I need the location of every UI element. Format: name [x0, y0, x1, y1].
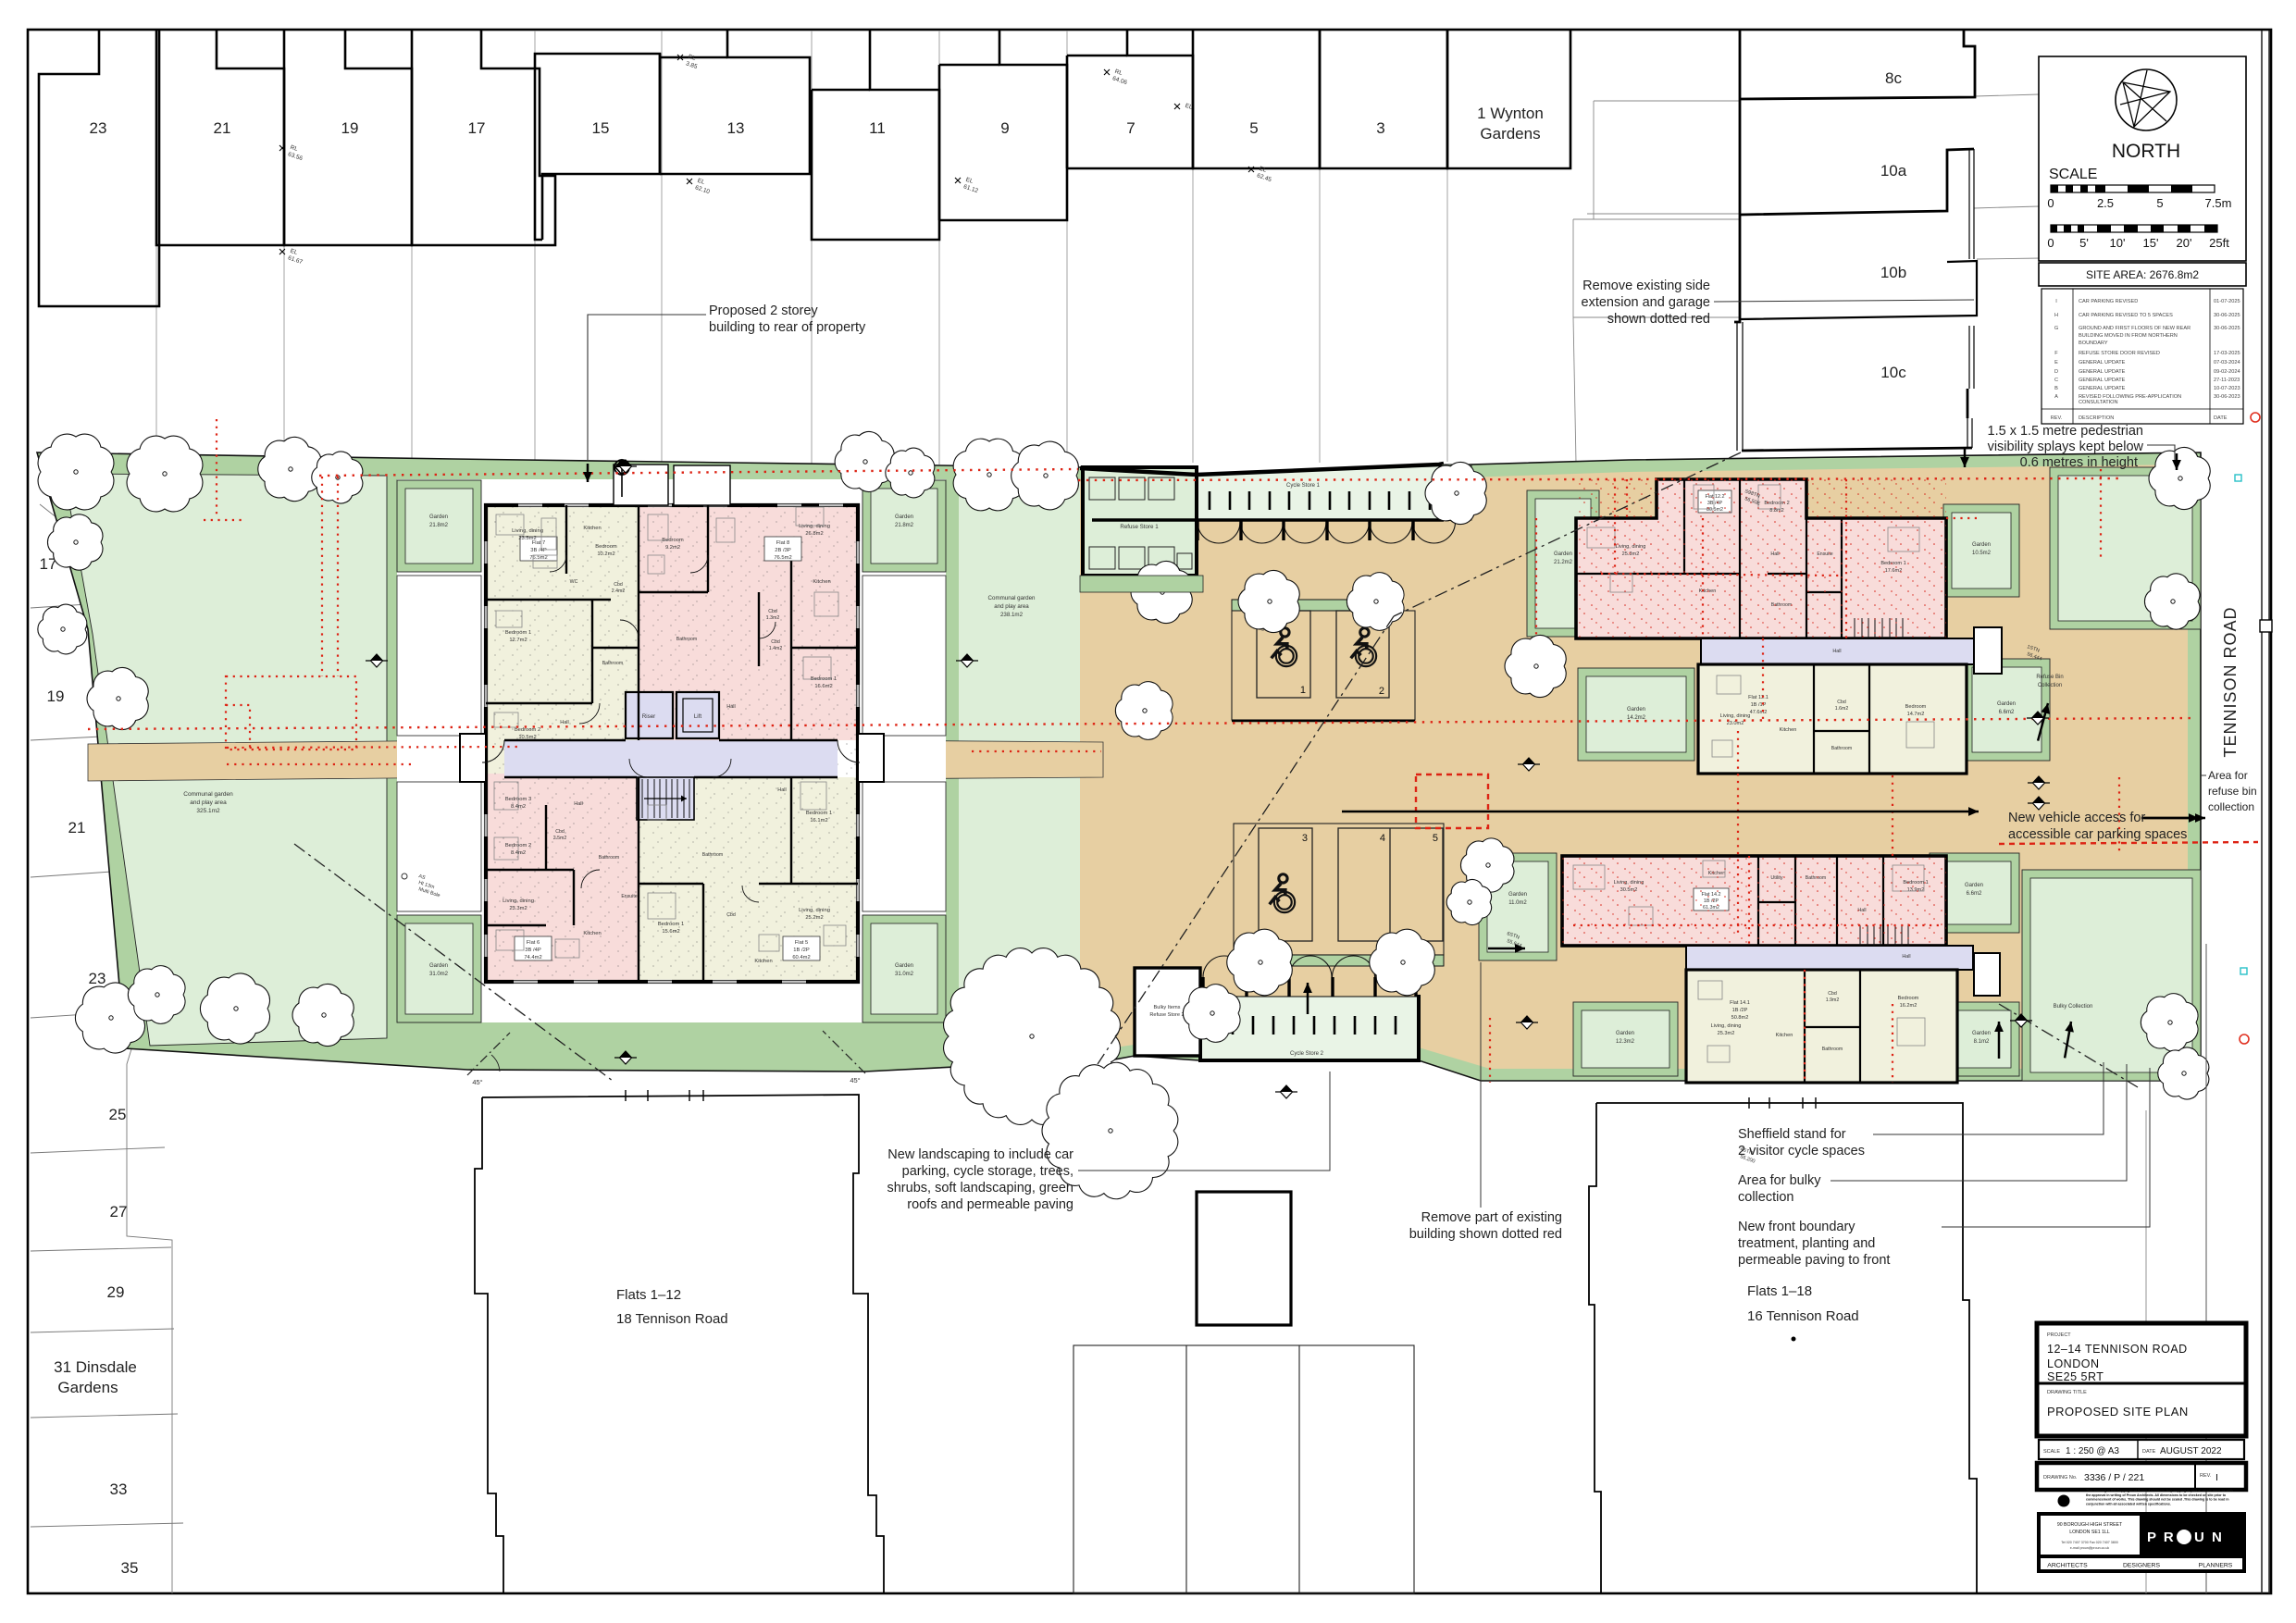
svg-text:Cycle Store 1: Cycle Store 1 — [1286, 483, 1321, 489]
svg-text:building to rear of property: building to rear of property — [709, 320, 866, 335]
svg-text:PLANNERS: PLANNERS — [2199, 1563, 2233, 1569]
svg-text:21: 21 — [68, 819, 86, 836]
svg-text:Kitchen: Kitchen — [1780, 727, 1797, 733]
svg-text:11.0m2: 11.0m2 — [1508, 900, 1527, 906]
svg-text:47.6m2: 47.6m2 — [1750, 710, 1768, 715]
svg-text:the approval in writing of Pro: the approval in writing of Proun Archite… — [2086, 1493, 2227, 1497]
svg-text:Tel 020 7407 3700 Fax: Tel 020 7407 3700 Fax 020 7407 3800 — [2061, 1541, 2118, 1544]
svg-text:REFUSE STORE DOOR REVISED: REFUSE STORE DOOR REVISED — [2079, 351, 2160, 356]
svg-text:31.0m2: 31.0m2 — [895, 972, 914, 977]
svg-text:refuse bin: refuse bin — [2208, 785, 2257, 798]
svg-text:DATE: DATE — [2214, 415, 2228, 421]
svg-text:Bulky Collection: Bulky Collection — [2054, 1004, 2093, 1010]
svg-text:building shown dotted red: building shown dotted red — [1409, 1227, 1562, 1242]
svg-text:8.1m2: 8.1m2 — [1974, 1039, 1990, 1045]
svg-text:2: 2 — [1379, 686, 1384, 697]
svg-text:NORTH: NORTH — [2112, 141, 2180, 162]
svg-text:Cbd: Cbd — [614, 582, 623, 588]
svg-text:Living, dining: Living, dining — [799, 908, 830, 913]
svg-text:P R: P R — [2147, 1530, 2176, 1545]
svg-text:17-03-2025: 17-03-2025 — [2214, 351, 2240, 356]
svg-text:collection: collection — [1738, 1190, 1793, 1205]
svg-text:0.6 metres in height: 0.6 metres in height — [2020, 455, 2138, 470]
svg-text:Bathroom: Bathroom — [1822, 1047, 1843, 1052]
svg-text:12.3m2: 12.3m2 — [1616, 1039, 1635, 1045]
svg-text:Flat 8: Flat 8 — [776, 540, 790, 546]
svg-text:New vehicle access for: New vehicle access for — [2008, 811, 2145, 825]
svg-text:1.3m2: 1.3m2 — [766, 615, 780, 621]
svg-text:17: 17 — [468, 119, 486, 137]
svg-text:Garden: Garden — [1972, 542, 1991, 548]
svg-text:7.5m: 7.5m — [2205, 196, 2232, 210]
svg-text:Hall: Hall — [777, 787, 786, 793]
svg-text:Bulky Items: Bulky Items — [1154, 1005, 1181, 1010]
svg-text:3B /4P: 3B /4P — [530, 548, 547, 553]
svg-text:3B /4P: 3B /4P — [525, 948, 541, 953]
svg-text:Hall: Hall — [1832, 649, 1841, 654]
svg-text:GROUND AND FIRST FLOORS OF: GROUND AND FIRST FLOORS OF NEW REAR — [2079, 326, 2191, 331]
svg-text:Refuse Bin: Refuse Bin — [2036, 675, 2063, 680]
svg-text:1B /2P: 1B /2P — [793, 948, 810, 953]
svg-text:2.4m2: 2.4m2 — [612, 588, 626, 594]
svg-text:27-11-2023: 27-11-2023 — [2214, 378, 2240, 383]
svg-text:45°: 45° — [850, 1076, 860, 1084]
svg-text:14.7m2: 14.7m2 — [1907, 712, 1925, 717]
svg-text:and play area: and play area — [190, 799, 227, 806]
svg-text:10': 10' — [2110, 236, 2126, 250]
svg-text:90 BOROUGH HIGH STREET: 90 BOROUGH HIGH STREET — [2057, 1522, 2123, 1528]
svg-text:Communal garden: Communal garden — [183, 791, 233, 798]
svg-text:0: 0 — [2047, 196, 2054, 210]
svg-text:I: I — [2215, 1472, 2218, 1483]
svg-text:16.2m2: 16.2m2 — [1900, 1003, 1917, 1009]
svg-text:GENERAL UPDATE: GENERAL UPDATE — [2079, 360, 2126, 365]
svg-text:5': 5' — [2079, 236, 2089, 250]
svg-text:6.6m2: 6.6m2 — [1999, 710, 2015, 715]
svg-text:BOUNDARY: BOUNDARY — [2079, 341, 2108, 346]
svg-text:G: G — [2054, 326, 2058, 331]
svg-text:PROJECT: PROJECT — [2047, 1332, 2071, 1338]
svg-text:07-03-2024: 07-03-2024 — [2214, 360, 2240, 365]
svg-text:Collection: Collection — [2038, 683, 2062, 688]
svg-text:10a: 10a — [1880, 162, 1907, 180]
svg-text:DESCRIPTION: DESCRIPTION — [2079, 415, 2114, 421]
svg-text:and play area: and play area — [994, 603, 1029, 610]
svg-text:collection: collection — [2208, 800, 2254, 813]
svg-text:Living, dining: Living, dining — [503, 898, 534, 904]
svg-text:C: C — [2054, 378, 2058, 383]
svg-text:shown dotted red: shown dotted red — [1607, 312, 1710, 327]
svg-text:visibility splays kept below: visibility splays kept below — [1988, 440, 2144, 454]
svg-text:12.7m2: 12.7m2 — [509, 638, 527, 643]
svg-text:Cbd: Cbd — [768, 609, 777, 614]
svg-text:Bedroom: Bedroom — [1905, 704, 1927, 710]
svg-text:F: F — [2054, 351, 2058, 356]
svg-text:4: 4 — [1380, 833, 1385, 844]
svg-text:19: 19 — [341, 119, 359, 137]
svg-text:Riser: Riser — [642, 713, 655, 720]
svg-text:New landscaping to include: New landscaping to include car — [887, 1147, 1074, 1162]
svg-text:parking, cycle storage, trees: parking, cycle storage, trees, — [902, 1164, 1074, 1179]
svg-text:Refuse Store 1: Refuse Store 1 — [1120, 524, 1159, 530]
svg-text:10-07-2023: 10-07-2023 — [2214, 386, 2240, 391]
svg-text:1.9m2: 1.9m2 — [1826, 997, 1840, 1003]
svg-text:roofs and permeable paving: roofs and permeable paving — [907, 1197, 1074, 1212]
svg-text:238.1m2: 238.1m2 — [1000, 612, 1024, 618]
svg-text:Kitchen: Kitchen — [583, 526, 601, 531]
svg-text:3: 3 — [1302, 833, 1308, 844]
svg-text:Cbd: Cbd — [555, 829, 565, 835]
svg-text:2 visitor cycle spaces: 2 visitor cycle spaces — [1738, 1144, 1865, 1158]
svg-text:2.5: 2.5 — [2097, 196, 2114, 210]
svg-text:Living, dining: Living, dining — [512, 528, 543, 534]
svg-text:30-06-2025: 30-06-2025 — [2214, 313, 2240, 318]
svg-text:23: 23 — [89, 970, 106, 987]
svg-text:GENERAL UPDATE: GENERAL UPDATE — [2079, 386, 2126, 391]
svg-text:2.5m2: 2.5m2 — [553, 836, 567, 841]
svg-text:25: 25 — [109, 1106, 127, 1123]
svg-text:E: E — [2054, 360, 2058, 365]
svg-text:Refuse Store 2: Refuse Store 2 — [1149, 1012, 1184, 1018]
svg-text:25.2m2: 25.2m2 — [805, 915, 823, 921]
svg-text:21: 21 — [214, 119, 231, 137]
svg-text:B: B — [2054, 386, 2058, 391]
svg-text:Communal garden: Communal garden — [988, 595, 1036, 601]
svg-text:H: H — [2054, 313, 2058, 318]
svg-text:21.8m2: 21.8m2 — [895, 523, 914, 528]
svg-text:Bedroom 1: Bedroom 1 — [658, 922, 684, 927]
svg-text:Proposed 2 storey: Proposed 2 storey — [709, 304, 818, 318]
svg-text:16.6m2: 16.6m2 — [814, 684, 832, 689]
svg-text:WC: WC — [570, 579, 578, 585]
svg-text:31 Dinsdale: 31 Dinsdale — [54, 1358, 137, 1376]
svg-text:Kitchen: Kitchen — [754, 959, 772, 964]
svg-text:5: 5 — [1433, 833, 1438, 844]
svg-text:Gardens: Gardens — [57, 1379, 118, 1396]
svg-text:SE25 5RT: SE25 5RT — [2047, 1370, 2104, 1383]
svg-text:DRAWING No.: DRAWING No. — [2043, 1475, 2078, 1481]
svg-text:74.4m2: 74.4m2 — [524, 955, 541, 960]
svg-text:BUILDING MOVED IN FROM NOR: BUILDING MOVED IN FROM NORTHERN — [2079, 333, 2178, 339]
svg-text:325.1m2: 325.1m2 — [196, 808, 220, 814]
svg-text:TENNISON ROAD: TENNISON ROAD — [2221, 606, 2240, 757]
svg-text:16 Tennison Road: 16 Tennison Road — [1747, 1308, 1859, 1324]
svg-text:12–14 TENNISON ROAD: 12–14 TENNISON ROAD — [2047, 1343, 2188, 1356]
svg-text:CAR PARKING REVISED: CAR PARKING REVISED — [2079, 299, 2138, 304]
svg-text:5: 5 — [2156, 196, 2163, 210]
svg-text:23: 23 — [90, 119, 107, 137]
svg-text:Garden: Garden — [1508, 892, 1527, 898]
svg-text:shrubs, soft landscaping, gree: shrubs, soft landscaping, green — [887, 1181, 1074, 1196]
svg-text:Cbd: Cbd — [771, 639, 780, 645]
svg-text:33: 33 — [110, 1481, 128, 1498]
svg-text:SCALE: SCALE — [2049, 167, 2097, 182]
svg-text:Bathroom: Bathroom — [676, 637, 698, 642]
svg-text:15.6m2: 15.6m2 — [662, 929, 679, 935]
svg-text:Garden: Garden — [1616, 1031, 1634, 1036]
svg-text:Garden: Garden — [895, 514, 913, 520]
svg-text:LONDON SE1 1LL: LONDON SE1 1LL — [2069, 1530, 2110, 1535]
svg-text:Kitchen: Kitchen — [1776, 1033, 1793, 1038]
svg-text:permeable paving to front: permeable paving to front — [1738, 1253, 1890, 1268]
svg-text:Hall: Hall — [560, 720, 568, 725]
svg-text:Bathroom: Bathroom — [702, 852, 724, 858]
svg-text:Garden: Garden — [1972, 1031, 1991, 1036]
svg-text:76.5m2: 76.5m2 — [774, 555, 791, 561]
svg-text:13: 13 — [727, 119, 745, 137]
svg-text:PROPOSED SITE PLAN: PROPOSED SITE PLAN — [2047, 1405, 2189, 1419]
svg-text:31.0m2: 31.0m2 — [429, 972, 449, 977]
svg-text:Bathroom: Bathroom — [602, 661, 624, 666]
svg-text:Remove existing side: Remove existing side — [1582, 279, 1710, 293]
svg-text:Flat 12.1: Flat 12.1 — [1748, 695, 1769, 700]
svg-text:1.5 x 1.5 metre pedestrian: 1.5 x 1.5 metre pedestrian — [1988, 424, 2143, 439]
svg-text:15: 15 — [592, 119, 610, 137]
svg-text:1.4m2: 1.4m2 — [769, 646, 783, 651]
svg-text:New front boundary: New front boundary — [1738, 1220, 1855, 1234]
svg-text:Remove part of existing: Remove part of existing — [1421, 1210, 1562, 1225]
svg-text:Bedroom: Bedroom — [1898, 996, 1919, 1001]
svg-text:11: 11 — [869, 119, 886, 137]
svg-text:treatment, planting and: treatment, planting and — [1738, 1236, 1875, 1251]
svg-text:Flats 1–12: Flats 1–12 — [616, 1287, 681, 1303]
svg-text:Garden: Garden — [895, 963, 913, 969]
svg-text:76.5m2: 76.5m2 — [529, 555, 547, 561]
svg-text:LONDON: LONDON — [2047, 1357, 2099, 1370]
svg-text:10c: 10c — [1880, 364, 1906, 381]
svg-text:5: 5 — [1249, 119, 1258, 137]
svg-text:Hall: Hall — [726, 704, 735, 710]
svg-text:Hall: Hall — [574, 801, 582, 807]
svg-text:GENERAL UPDATE: GENERAL UPDATE — [2079, 369, 2126, 375]
svg-text:30-06-2025: 30-06-2025 — [2214, 326, 2240, 331]
svg-text:e-mail proun@proun.co.uk: e-mail proun@proun.co.uk — [2070, 1546, 2110, 1550]
svg-text:Living, dining: Living, dining — [799, 524, 830, 529]
svg-text:1B /2P: 1B /2P — [1732, 1008, 1748, 1013]
svg-text:19: 19 — [47, 688, 65, 705]
svg-text:30-06-2023: 30-06-2023 — [2214, 394, 2240, 400]
svg-text:commencement of works. This dr: commencement of works. This drawing shou… — [2086, 1498, 2229, 1502]
svg-text:ARCHITECTS: ARCHITECTS — [2047, 1563, 2088, 1569]
svg-text:1B /1P: 1B /1P — [1751, 702, 1767, 708]
svg-text:Cbd: Cbd — [726, 912, 736, 918]
svg-text:3336 / P / 221: 3336 / P / 221 — [2084, 1472, 2144, 1483]
svg-text:Garden: Garden — [429, 514, 448, 520]
svg-text:1 : 250 @ A3: 1 : 250 @ A3 — [2066, 1446, 2119, 1456]
svg-text:0: 0 — [2047, 236, 2054, 250]
svg-text:23.0m2: 23.0m2 — [1727, 721, 1744, 726]
svg-text:09-02-2024: 09-02-2024 — [2214, 369, 2240, 375]
svg-text:29: 29 — [107, 1283, 125, 1301]
svg-text:Flat 14.1: Flat 14.1 — [1730, 1000, 1750, 1006]
svg-text:Garden: Garden — [429, 963, 448, 969]
svg-text:27: 27 — [110, 1203, 128, 1220]
svg-text:Ensuite: Ensuite — [621, 894, 637, 899]
svg-text:Flat 6: Flat 6 — [527, 940, 540, 946]
svg-text:21.2m2: 21.2m2 — [1554, 560, 1573, 565]
svg-text:SCALE: SCALE — [2043, 1449, 2060, 1455]
svg-text:Cycle Store 2: Cycle Store 2 — [1290, 1051, 1324, 1057]
svg-text:1 Wynton: 1 Wynton — [1477, 105, 1544, 122]
svg-text:Garden: Garden — [1997, 701, 2016, 707]
svg-text:Garden: Garden — [1965, 883, 1983, 888]
svg-text:25ft: 25ft — [2209, 236, 2229, 250]
svg-text:accessible car parking space: accessible car parking spaces — [2008, 827, 2187, 842]
svg-text:18 Tennison Road: 18 Tennison Road — [616, 1311, 728, 1327]
svg-text:26.8m2: 26.8m2 — [805, 531, 823, 537]
svg-text:8c: 8c — [1885, 69, 1902, 87]
svg-text:23.5m2: 23.5m2 — [518, 536, 536, 541]
svg-text:DRAWING TITLE: DRAWING TITLE — [2047, 1390, 2087, 1395]
svg-text:REV.: REV. — [2200, 1473, 2212, 1479]
svg-text:Bedroom: Bedroom — [595, 544, 617, 550]
svg-text:GENERAL UPDATE: GENERAL UPDATE — [2079, 378, 2126, 383]
svg-text:SITE AREA: 2676.8m2: SITE AREA: 2676.8m2 — [2086, 268, 2199, 281]
svg-text:This drawing is the Copyright: This drawing is the Copyright of Proun A… — [2086, 1489, 2233, 1493]
svg-text:Living, dining: Living, dining — [1711, 1023, 1742, 1029]
svg-text:Hall: Hall — [1902, 954, 1910, 960]
svg-text:Bathroom: Bathroom — [599, 855, 620, 861]
svg-text:Bedroom 2: Bedroom 2 — [515, 727, 540, 733]
svg-text:25.3m2: 25.3m2 — [1718, 1031, 1735, 1036]
svg-text:CAR PARKING REVISED TO 5: CAR PARKING REVISED TO 5 SPACES — [2079, 313, 2173, 318]
svg-text:extension and garage: extension and garage — [1582, 295, 1710, 310]
svg-text:6.6m2: 6.6m2 — [1967, 891, 1982, 897]
svg-text:Garden: Garden — [1554, 551, 1572, 557]
svg-text:conjunction with all associate: conjunction with all associated written … — [2086, 1502, 2171, 1505]
svg-text:1: 1 — [1300, 685, 1306, 696]
svg-text:10.5m2: 10.5m2 — [1972, 551, 1992, 556]
svg-text:Bathroom: Bathroom — [1831, 746, 1853, 751]
svg-text:20': 20' — [2177, 236, 2192, 250]
svg-text:7: 7 — [1126, 119, 1135, 137]
svg-text:DATE: DATE — [2142, 1449, 2156, 1455]
svg-text:Living, dining: Living, dining — [1720, 713, 1751, 719]
svg-text:Flat 5: Flat 5 — [795, 940, 809, 946]
svg-text:Cbd: Cbd — [1837, 700, 1846, 705]
svg-text:Area for: Area for — [2208, 769, 2248, 782]
svg-text:35: 35 — [121, 1559, 139, 1577]
svg-text:CONSULTATION: CONSULTATION — [2079, 400, 2118, 405]
svg-text:Area for bulky: Area for bulky — [1738, 1173, 1821, 1188]
svg-text:Sheffield stand for: Sheffield stand for — [1738, 1127, 1846, 1142]
svg-text:9: 9 — [1000, 119, 1009, 137]
svg-text:15': 15' — [2143, 236, 2159, 250]
svg-text:Lift: Lift — [694, 713, 702, 720]
svg-text:Kitchen: Kitchen — [583, 931, 601, 936]
svg-text:3: 3 — [1376, 119, 1384, 137]
svg-text:1.6m2: 1.6m2 — [1835, 706, 1849, 712]
svg-text:Bedroom 1: Bedroom 1 — [806, 811, 832, 816]
svg-text:60.4m2: 60.4m2 — [792, 955, 810, 960]
svg-text:10.2m2: 10.2m2 — [597, 551, 614, 557]
svg-text:Cbd: Cbd — [1828, 991, 1837, 997]
svg-text:01-07-2025: 01-07-2025 — [2214, 299, 2240, 304]
svg-text:Kitchen: Kitchen — [813, 579, 830, 585]
svg-text:10b: 10b — [1880, 264, 1906, 281]
svg-text:Flats 1–18: Flats 1–18 — [1747, 1283, 1812, 1299]
svg-text:21.8m2: 21.8m2 — [429, 523, 449, 528]
svg-text:50.8m2: 50.8m2 — [1731, 1015, 1749, 1021]
svg-text:16.1m2: 16.1m2 — [810, 818, 827, 824]
svg-text:D: D — [2054, 369, 2058, 375]
svg-text:DESIGNERS: DESIGNERS — [2123, 1563, 2161, 1569]
svg-text:23.3m2: 23.3m2 — [509, 906, 527, 911]
svg-text:2B /3P: 2B /3P — [775, 548, 791, 553]
svg-text:A: A — [2054, 394, 2058, 400]
svg-text:Gardens: Gardens — [1480, 125, 1540, 142]
svg-text:U N: U N — [2194, 1530, 2224, 1545]
svg-text:10.5m2: 10.5m2 — [518, 735, 536, 740]
svg-text:Garden: Garden — [1627, 707, 1645, 712]
svg-text:45°: 45° — [472, 1078, 482, 1086]
svg-text:REV.: REV. — [2051, 415, 2063, 421]
svg-text:AUGUST 2022: AUGUST 2022 — [2160, 1446, 2222, 1456]
svg-text:Bedroom 1: Bedroom 1 — [505, 630, 531, 636]
svg-text:9.2m2: 9.2m2 — [665, 545, 680, 551]
